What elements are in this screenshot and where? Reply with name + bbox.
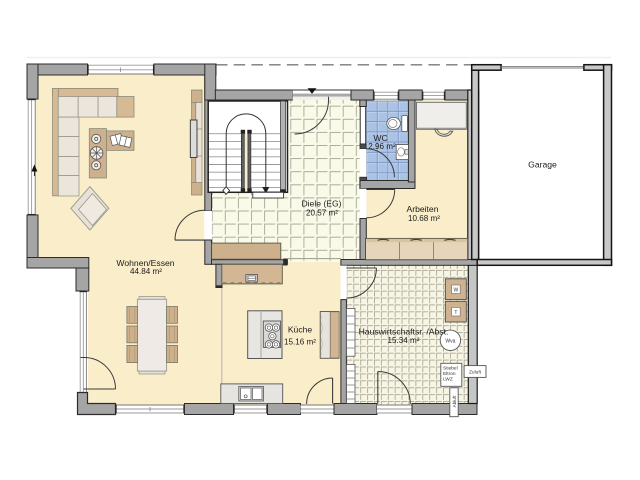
svg-text:T: T <box>454 310 457 316</box>
svg-text:Wva: Wva <box>445 338 455 344</box>
svg-text:Garage: Garage <box>528 159 557 169</box>
svg-text:Küche: Küche <box>288 325 313 335</box>
svg-text:2.96 m²: 2.96 m² <box>368 142 396 151</box>
svg-text:Arbeiten: Arbeiten <box>406 204 438 214</box>
svg-text:Zuluft: Zuluft <box>469 370 482 376</box>
svg-text:Stiebel: Stiebel <box>443 366 458 372</box>
svg-text:Abluft: Abluft <box>452 395 457 407</box>
svg-text:Diele (EG): Diele (EG) <box>301 198 341 208</box>
svg-text:20.57 m²: 20.57 m² <box>306 209 338 218</box>
svg-text:44.84 m²: 44.84 m² <box>130 267 162 276</box>
svg-text:W: W <box>454 288 459 294</box>
svg-text:15.16 m²: 15.16 m² <box>284 337 316 346</box>
svg-text:10.68 m²: 10.68 m² <box>408 214 440 223</box>
svg-text:LWZ: LWZ <box>443 377 453 383</box>
svg-text:Hauswirtschaftsr. /Abst.: Hauswirtschaftsr. /Abst. <box>359 326 449 336</box>
svg-text:Eltron: Eltron <box>443 371 456 377</box>
svg-text:15.34 m²: 15.34 m² <box>388 336 420 345</box>
